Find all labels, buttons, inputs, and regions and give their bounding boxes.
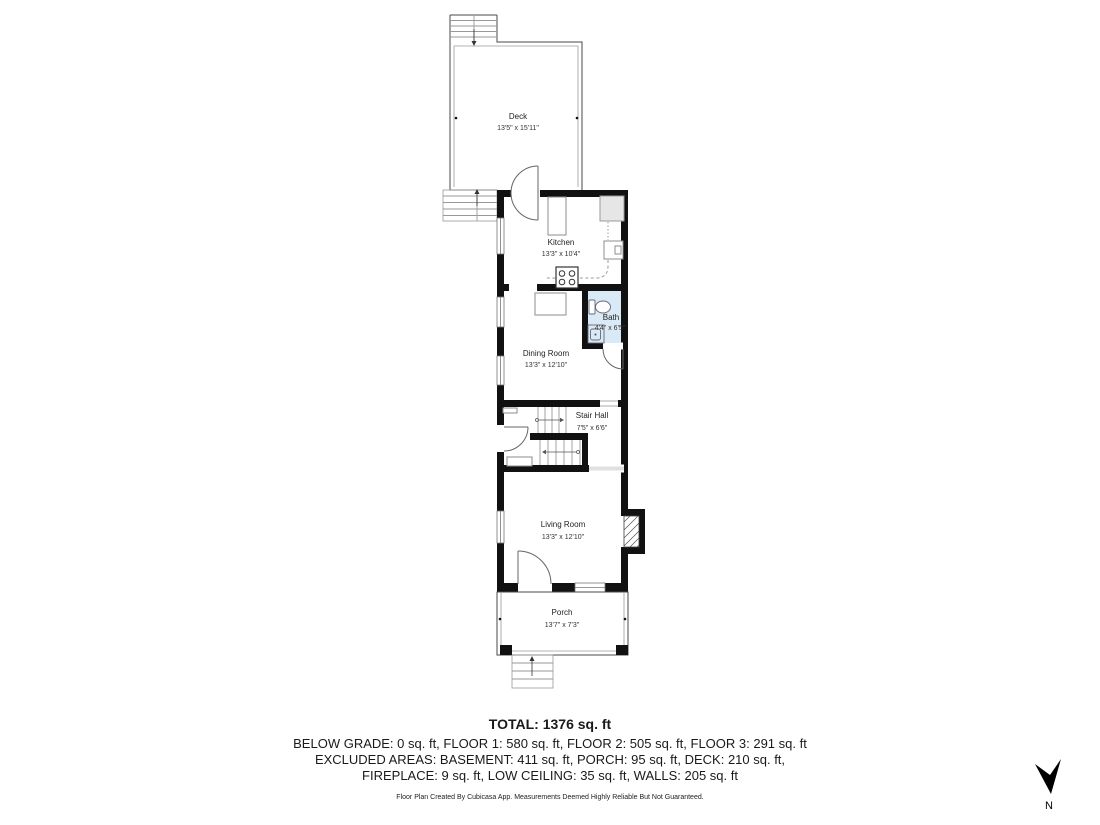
side-entry-door-icon bbox=[504, 427, 528, 451]
deck-dims: 13'5" x 15'11" bbox=[497, 125, 539, 132]
kitchen-counter-icon bbox=[548, 197, 566, 235]
dining-room: Dining Room 13'3" x 12'10" bbox=[523, 293, 570, 369]
deck-lower-stairs-icon bbox=[443, 189, 497, 221]
stove-icon bbox=[556, 267, 578, 288]
fridge-icon bbox=[600, 196, 624, 221]
disclaimer-text: Floor Plan Created By Cubicasa App. Meas… bbox=[0, 794, 1100, 801]
porch-label: Porch bbox=[552, 608, 573, 617]
porch-dims: 13'7" x 7'3" bbox=[545, 622, 580, 629]
deck-upper-stairs-icon bbox=[450, 15, 497, 46]
stair-hall-label: Stair Hall bbox=[576, 411, 609, 420]
floor-plan-page: { "rooms": { "deck": {"name": "Deck", "d… bbox=[0, 0, 1100, 825]
window-dining-left-1 bbox=[497, 297, 504, 327]
deck-label: Deck bbox=[509, 112, 528, 121]
porch-post-left bbox=[500, 645, 512, 655]
sink-icon bbox=[604, 241, 623, 259]
area-summary: TOTAL: 1376 sq. ft BELOW GRADE: 0 sq. ft… bbox=[0, 716, 1100, 801]
north-label: N bbox=[1045, 800, 1053, 812]
hall-shelf-icon bbox=[503, 408, 517, 413]
window-living-bottom bbox=[575, 583, 605, 592]
porch-post-right bbox=[616, 645, 628, 655]
front-door-icon bbox=[518, 551, 551, 584]
bath-label: Bath bbox=[603, 313, 619, 322]
kitchen-label: Kitchen bbox=[548, 238, 575, 247]
dining-table-icon bbox=[535, 293, 566, 315]
living-room-label: Living Room bbox=[541, 520, 586, 529]
porch-room: Porch 13'7" x 7'3" bbox=[497, 592, 628, 688]
excluded-areas-line-2: FIREPLACE: 9 sq. ft, LOW CEILING: 35 sq.… bbox=[0, 768, 1100, 784]
dining-room-label: Dining Room bbox=[523, 349, 570, 358]
window-living-left bbox=[497, 511, 504, 543]
bath-room: Bath 4'4" x 6'5" bbox=[588, 291, 626, 369]
floor-areas-line: BELOW GRADE: 0 sq. ft, FLOOR 1: 580 sq. … bbox=[0, 736, 1100, 752]
fireplace-icon bbox=[621, 509, 645, 554]
window-kitchen-left bbox=[497, 218, 504, 254]
porch-steps-icon bbox=[512, 655, 553, 688]
kitchen-dims: 13'3" x 10'4" bbox=[542, 251, 581, 258]
stair-hall-dims: 7'5" x 6'6" bbox=[577, 425, 608, 432]
bath-dims: 4'4" x 6'5" bbox=[595, 325, 626, 332]
window-dining-left-2 bbox=[497, 356, 504, 385]
kitchen-room: Kitchen 13'3" x 10'4" bbox=[511, 166, 624, 288]
living-room-dims: 13'3" x 12'10" bbox=[542, 534, 585, 541]
north-arrow-icon: N bbox=[1028, 752, 1072, 816]
floor-plan-drawing: Deck 13'5" x 15'11" bbox=[0, 0, 1100, 825]
total-area: TOTAL: 1376 sq. ft bbox=[0, 716, 1100, 732]
understair-closet-icon bbox=[507, 457, 532, 466]
bath-door-icon bbox=[603, 349, 623, 369]
toilet-icon bbox=[589, 300, 611, 314]
excluded-areas-line-1: EXCLUDED AREAS: BASEMENT: 411 sq. ft, PO… bbox=[0, 752, 1100, 768]
dining-room-dims: 13'3" x 12'10" bbox=[525, 362, 568, 369]
